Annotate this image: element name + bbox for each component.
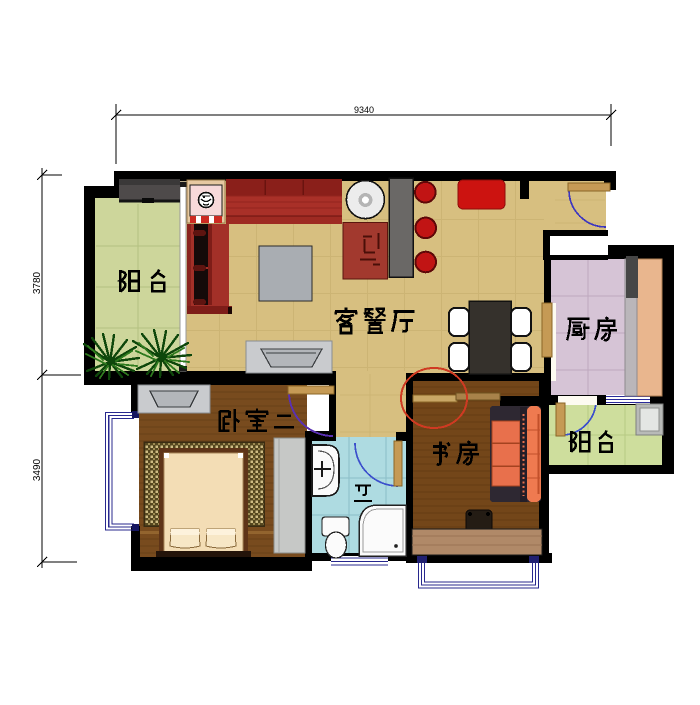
svg-text:3490: 3490 [32, 458, 43, 481]
svg-text:9340: 9340 [354, 105, 374, 115]
svg-text:3780: 3780 [32, 271, 43, 294]
